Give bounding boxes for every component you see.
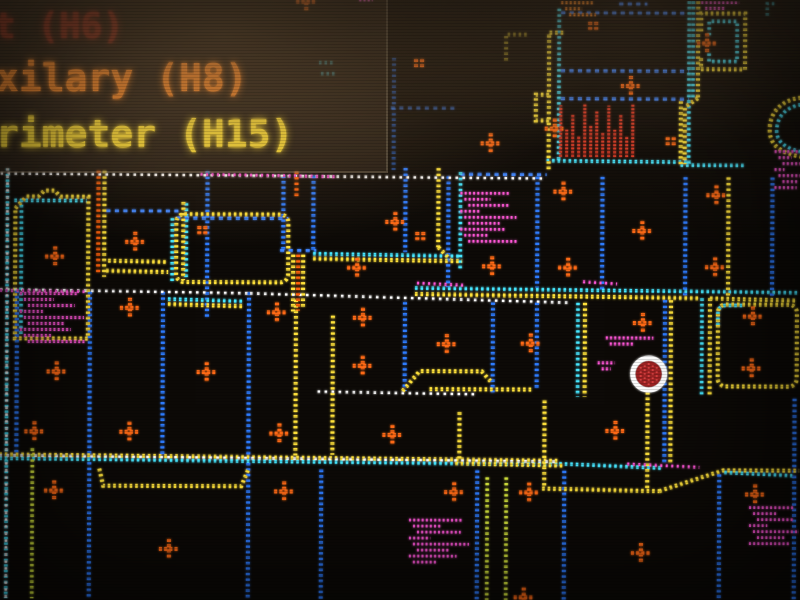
device-marker-icon [519,483,539,503]
device-marker-icon [444,482,464,502]
device-marker-icon [742,358,762,378]
device-marker-icon [47,361,67,381]
pixel-text-block [606,338,654,344]
magenta-accents [0,173,701,467]
tick-mark-icon [416,59,422,67]
device-marker-icon [605,421,625,441]
device-marker-icon [514,587,534,600]
device-marker-icon [482,256,502,276]
device-marker-icon [382,425,402,445]
device-marker-icon [481,133,501,153]
device-marker-icon [267,302,287,322]
device-marker-icon [119,422,139,442]
pixel-text-block [20,293,85,341]
device-marker-icon [44,480,64,500]
pixel-text-block [598,363,615,369]
device-marker-icon [125,232,145,252]
device-marker-icon [24,421,44,441]
legend-item-zone-h15: rimeter (H15) [0,112,293,156]
device-marker-icon [705,257,725,277]
device-marker-icon [437,334,457,354]
device-marker-icon [633,313,653,333]
device-marker-icon [743,306,763,326]
tick-mark-icon [417,232,423,240]
pixel-text-block [561,103,633,157]
pixel-text-block [701,2,739,8]
alarm-map-screen: t (H6) xilary (H8) rimeter (H15) [0,0,800,600]
device-marker-icon [353,308,373,328]
pixel-text-block [460,193,518,241]
alarm-marker[interactable] [633,358,665,390]
tick-mark-icon [668,137,674,145]
device-marker-icon [385,212,405,232]
device-marker-icon [621,76,641,96]
device-marker-icon [274,481,294,501]
tick-mark-icon [199,226,205,234]
device-marker-icon [269,423,289,443]
tick-mark-icon [590,22,596,30]
device-marker-icon [120,298,140,318]
device-marker-icon [159,539,179,559]
legend-item-zone-h8: xilary (H8) [0,56,248,100]
device-marker-icon [353,356,373,376]
device-marker-icon [558,258,578,278]
device-marker-icon [197,362,217,382]
legend-item-zone-h6: t (H6) [0,6,124,47]
device-marker-icon [745,485,765,505]
device-marker-icon [632,221,652,241]
device-marker-icon [553,182,573,202]
device-marker-icon [45,246,65,266]
device-marker-icon [706,185,726,205]
pixel-text-block [409,520,469,562]
legend-panel: t (H6) xilary (H8) rimeter (H15) [0,0,388,173]
device-marker-icon [631,543,651,563]
